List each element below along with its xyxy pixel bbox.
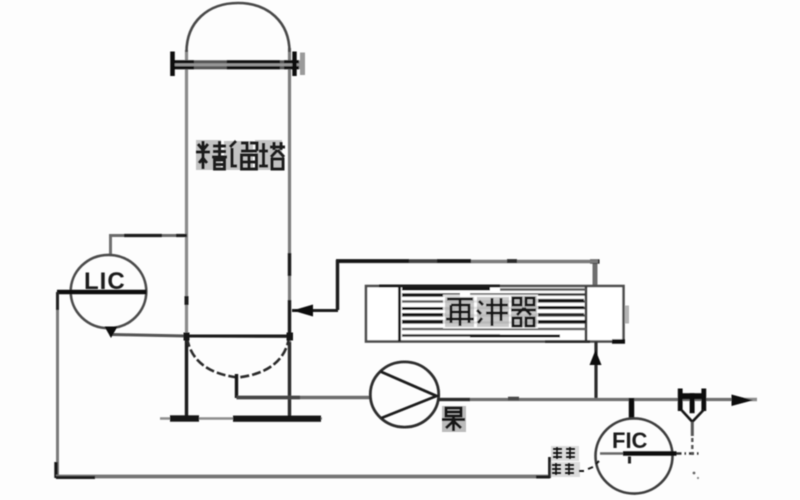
svg-text:FIC: FIC <box>612 428 648 453</box>
svg-text:LIC: LIC <box>84 268 126 295</box>
